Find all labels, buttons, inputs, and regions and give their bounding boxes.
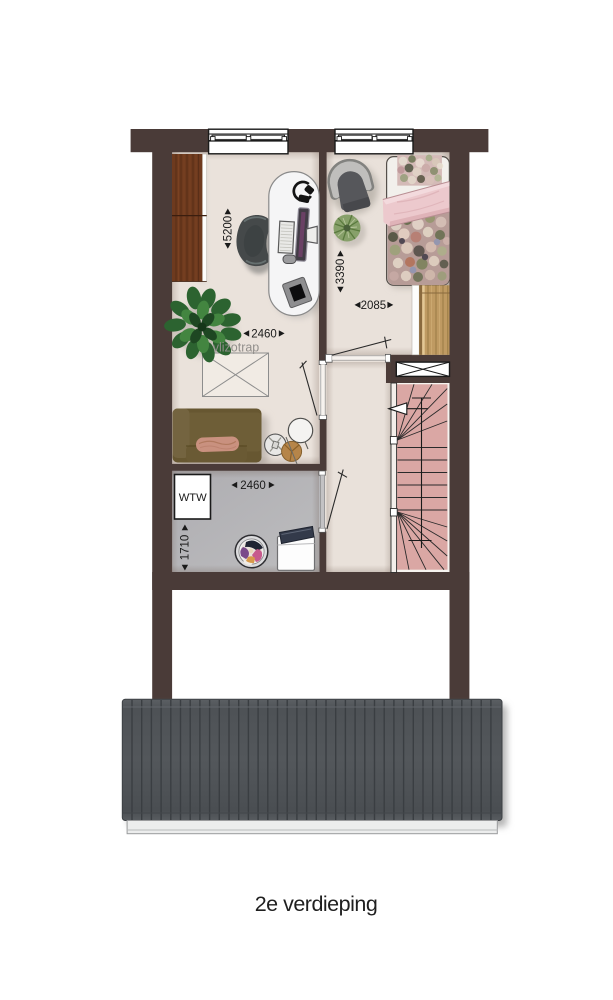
svg-text:2e verdieping: 2e verdieping (255, 892, 378, 916)
svg-text:1710: 1710 (179, 535, 191, 561)
svg-text:WTW: WTW (179, 492, 207, 504)
svg-text:2085: 2085 (361, 300, 387, 312)
svg-text:vlizotrap: vlizotrap (213, 341, 260, 355)
svg-text:2460: 2460 (240, 480, 266, 492)
svg-text:5200: 5200 (222, 216, 234, 242)
svg-text:2460: 2460 (251, 329, 277, 341)
svg-text:3390: 3390 (335, 259, 347, 285)
